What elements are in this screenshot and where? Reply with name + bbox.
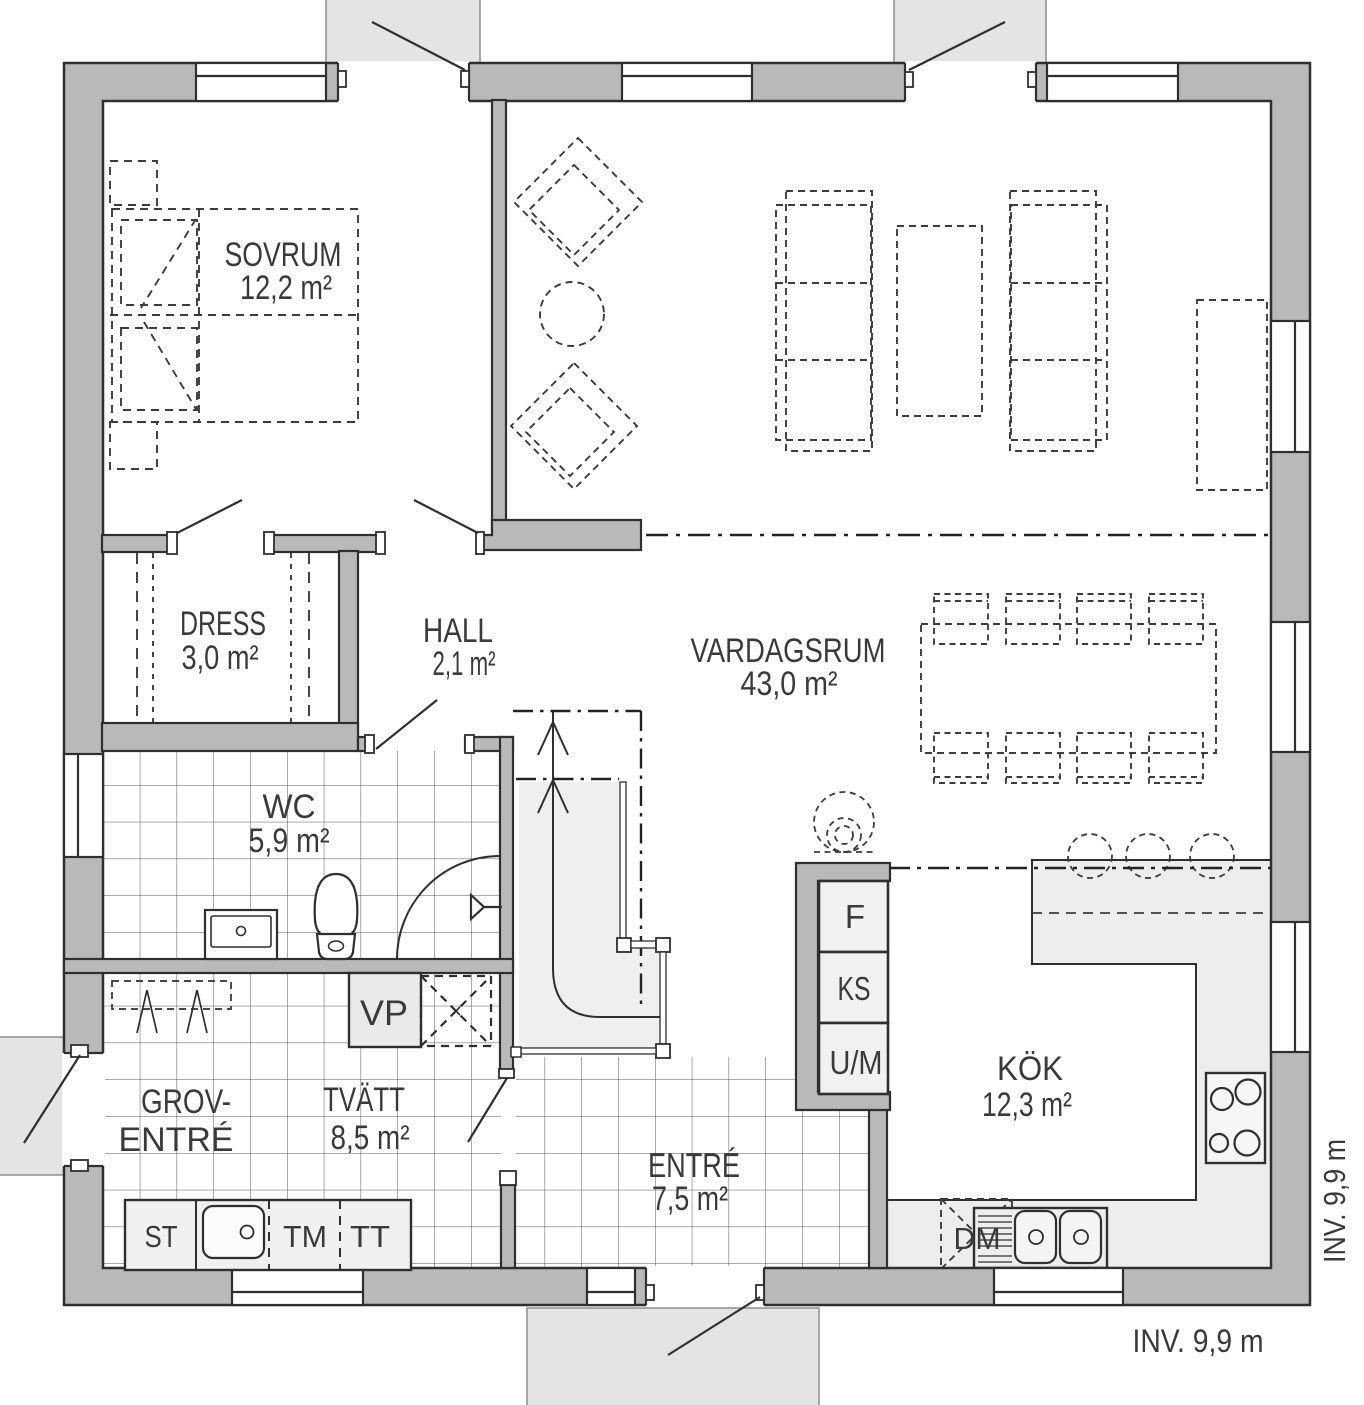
svg-text:5,9 m²: 5,9 m² <box>249 822 330 860</box>
svg-text:12,3 m²: 12,3 m² <box>982 1086 1072 1124</box>
svg-text:GROV-: GROV- <box>141 1083 231 1121</box>
svg-text:3,0 m²: 3,0 m² <box>182 639 259 677</box>
svg-text:ST: ST <box>145 1219 178 1254</box>
svg-text:WC: WC <box>263 788 316 826</box>
svg-text:U/M: U/M <box>830 1044 883 1081</box>
svg-text:F: F <box>845 898 865 935</box>
svg-text:TM: TM <box>283 1219 327 1254</box>
svg-text:DM: DM <box>954 1221 1001 1256</box>
svg-text:INV. 9,9 m: INV. 9,9 m <box>1133 1323 1264 1359</box>
svg-text:INV. 9,9 m: INV. 9,9 m <box>1317 1139 1352 1263</box>
svg-text:TVÄTT: TVÄTT <box>323 1081 405 1119</box>
svg-text:VP: VP <box>360 994 408 1033</box>
svg-text:7,5 m²: 7,5 m² <box>652 1180 728 1218</box>
svg-text:8,5 m²: 8,5 m² <box>331 1119 410 1157</box>
svg-text:KÖK: KÖK <box>997 1050 1063 1088</box>
svg-text:ENTRÉ: ENTRÉ <box>119 1121 234 1159</box>
svg-text:DRESS: DRESS <box>180 605 266 643</box>
svg-text:TT: TT <box>350 1219 390 1254</box>
svg-text:43,0 m²: 43,0 m² <box>741 665 838 703</box>
svg-text:12,2 m²: 12,2 m² <box>240 269 332 307</box>
svg-text:2,1 m²: 2,1 m² <box>433 645 496 683</box>
svg-text:KS: KS <box>838 970 871 1007</box>
